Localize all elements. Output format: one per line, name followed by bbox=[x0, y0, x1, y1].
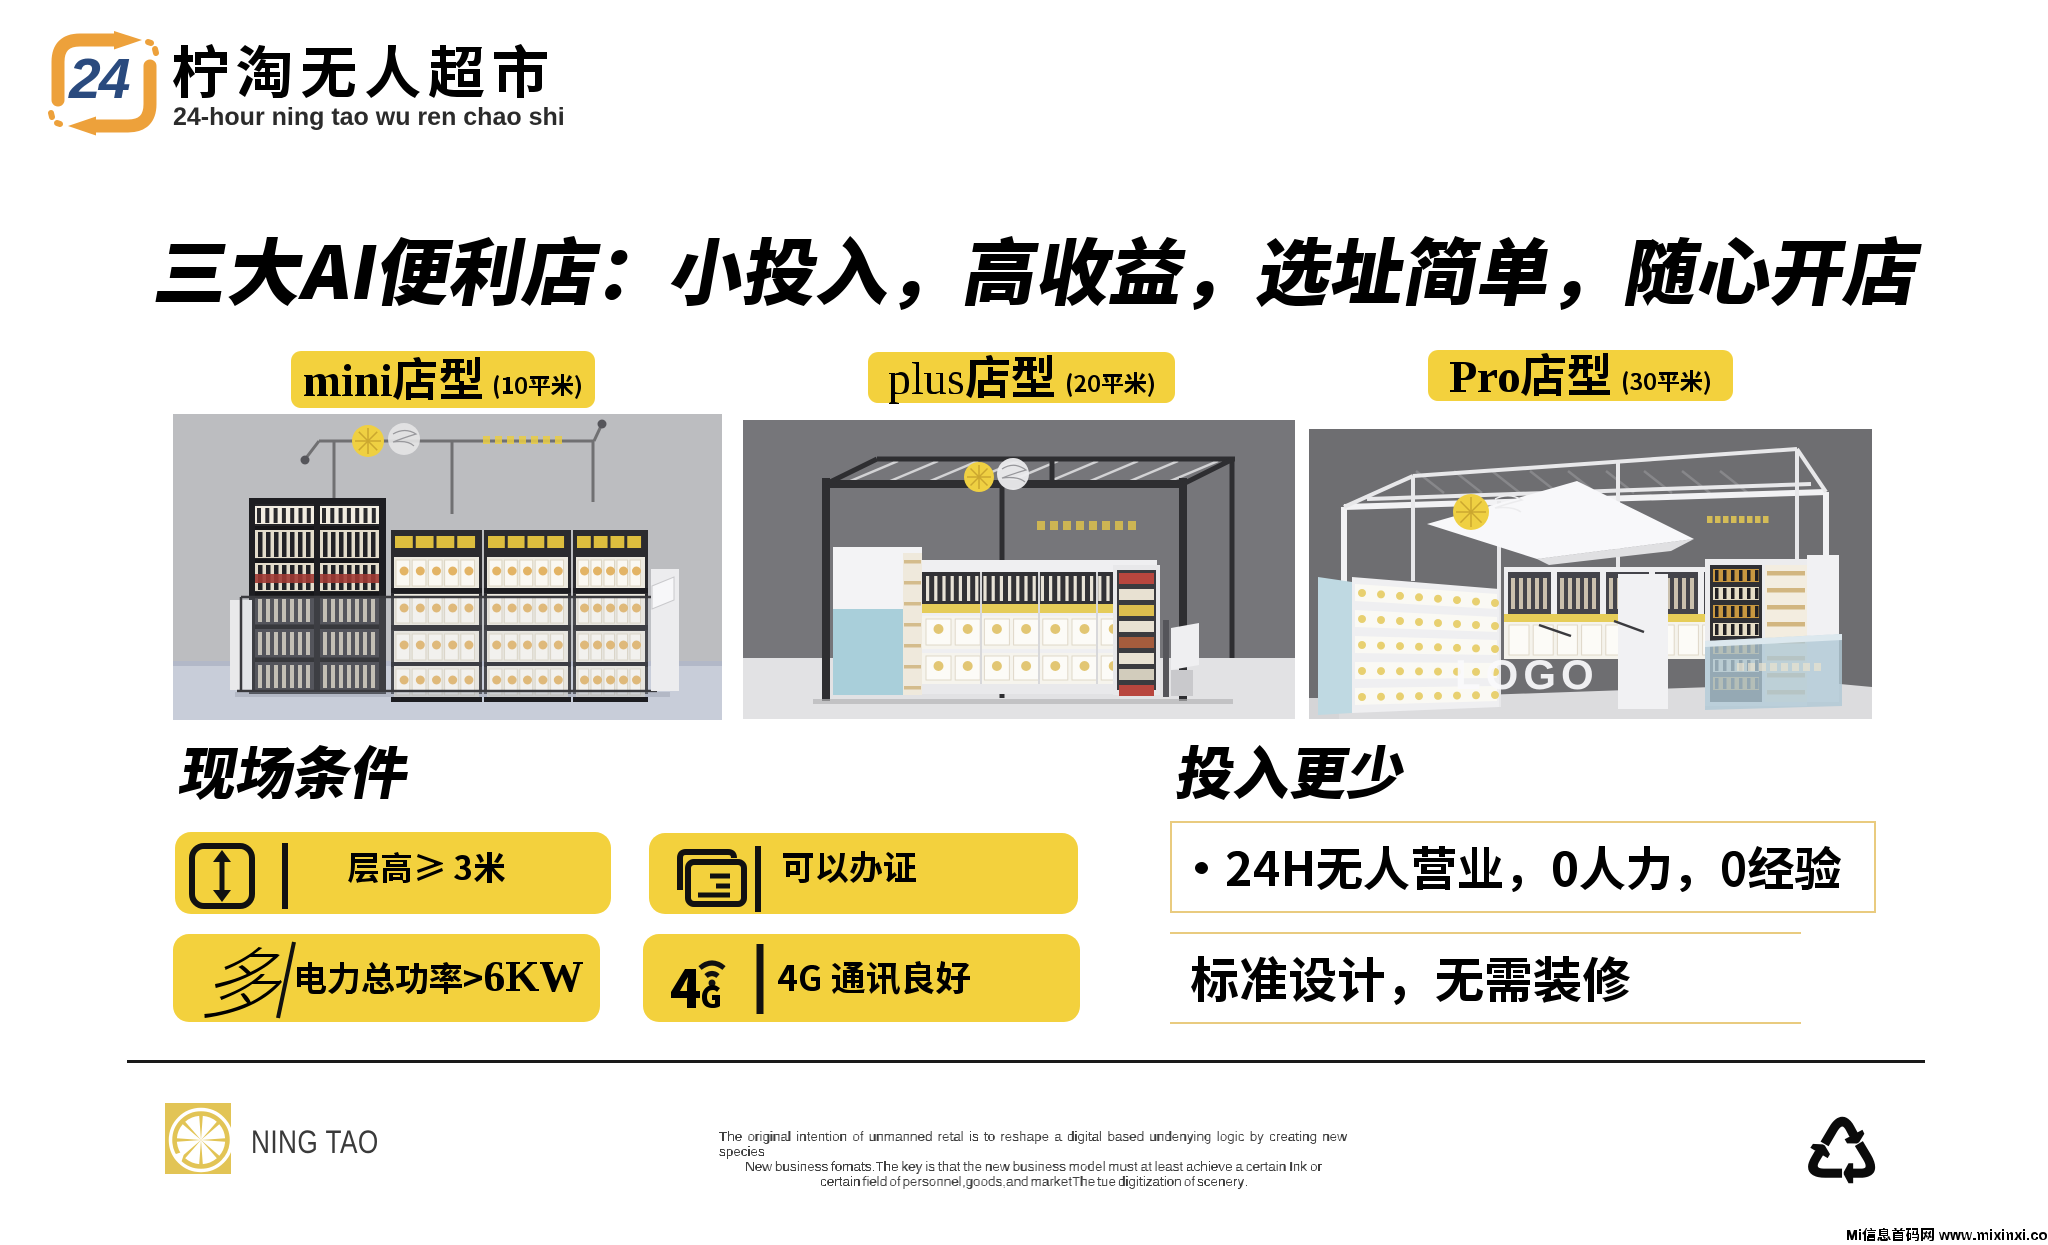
svg-text:LOGO: LOGO bbox=[1455, 651, 1599, 698]
